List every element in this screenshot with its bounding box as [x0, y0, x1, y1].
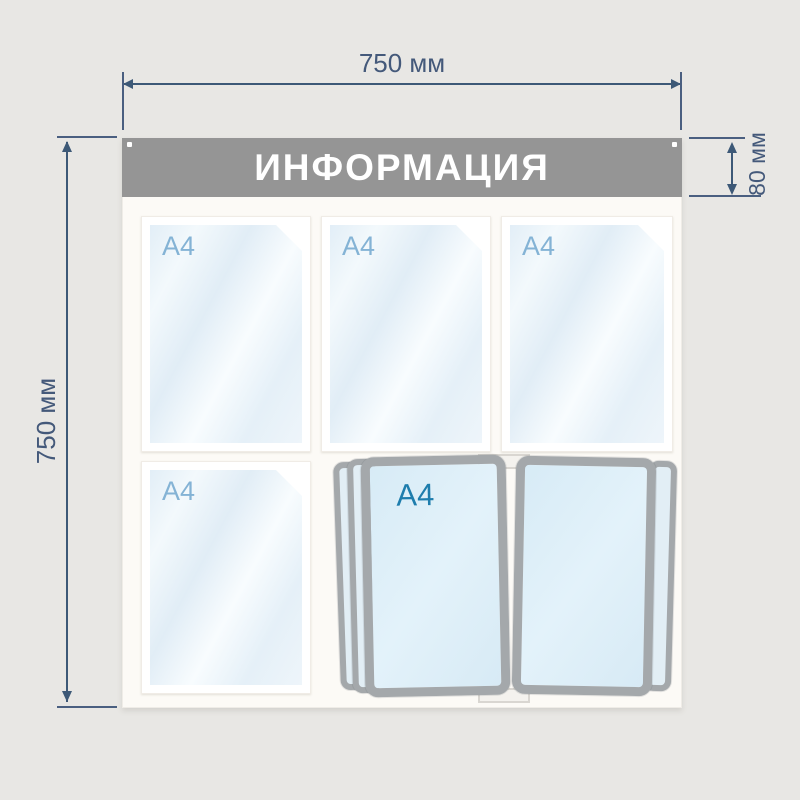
a4-pocket-3: A4	[501, 216, 673, 452]
width-dimension-line	[123, 83, 681, 85]
pocket-window: A4	[330, 225, 482, 443]
height-dimension-label: 750 мм	[31, 351, 61, 491]
a4-pocket-1: A4	[141, 216, 311, 452]
board-header: ИНФОРМАЦИЯ	[122, 138, 682, 197]
pocket-size-label: A4	[162, 476, 195, 507]
width-dimension-label: 750 мм	[122, 48, 682, 79]
flip-page-system: A4	[337, 454, 675, 704]
pocket-size-label: A4	[522, 231, 555, 262]
witness-line	[689, 137, 745, 139]
arrow-left-icon	[123, 79, 133, 89]
arrow-down-icon	[727, 184, 737, 195]
a4-pocket-2: A4	[321, 216, 491, 452]
pocket-size-label: A4	[162, 231, 195, 262]
arrow-up-icon	[62, 141, 72, 152]
board-title: ИНФОРМАЦИЯ	[254, 147, 550, 189]
information-board: ИНФОРМАЦИЯ A4 A4 A4 A4	[122, 138, 682, 708]
pocket-size-label: A4	[342, 231, 375, 262]
witness-line	[689, 195, 761, 197]
pocket-window: A4	[510, 225, 664, 443]
mounting-hole-icon	[127, 142, 132, 147]
witness-line	[122, 72, 124, 130]
flip-page-right	[512, 456, 657, 697]
pocket-window: A4	[150, 470, 302, 685]
flip-page-left: A4	[361, 455, 511, 698]
product-image: 750 мм 750 мм 80 мм ИНФОРМАЦИЯ	[0, 0, 800, 800]
witness-line	[57, 136, 117, 138]
flip-size-label: A4	[396, 477, 435, 514]
a4-pocket-4: A4	[141, 461, 311, 694]
arrow-up-icon	[727, 142, 737, 153]
arrow-down-icon	[62, 691, 72, 702]
witness-line	[57, 706, 117, 708]
pocket-window: A4	[150, 225, 302, 443]
height-dimension-line	[66, 142, 68, 702]
witness-line	[680, 72, 682, 130]
mounting-hole-icon	[672, 142, 677, 147]
